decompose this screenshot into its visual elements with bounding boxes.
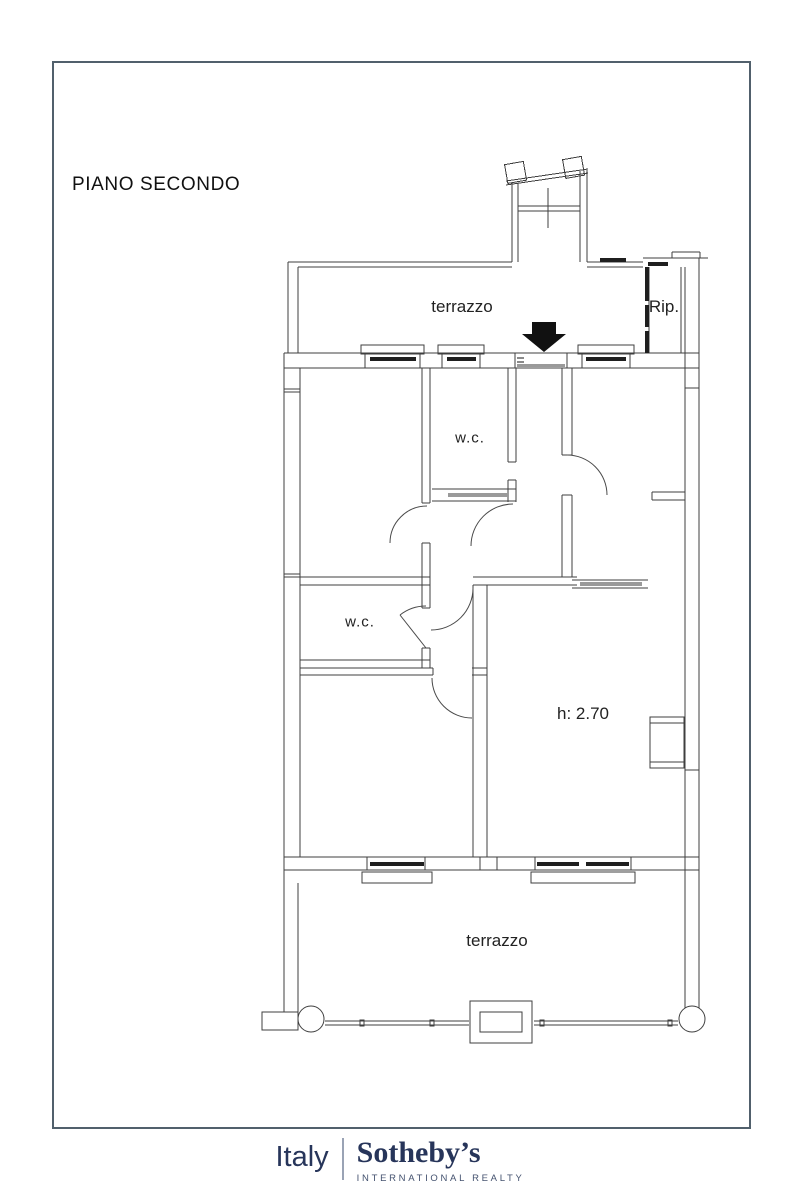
balcony-columns	[298, 1006, 705, 1032]
entrance-arrow-icon	[522, 322, 566, 352]
stairwell-protrusion	[505, 156, 588, 262]
room-label-wc-mid: w.c.	[345, 614, 375, 631]
right-exterior-wall	[652, 258, 699, 883]
left-exterior-wall	[284, 353, 300, 883]
bottom-terrace-walls	[262, 883, 699, 1043]
brand-divider	[342, 1138, 344, 1180]
window-bars	[370, 258, 668, 866]
room-label-terrace-top: terrazzo	[431, 297, 492, 317]
floor-title: PIANO SECONDO	[72, 174, 240, 196]
room-label-storage: Rip.	[649, 297, 679, 317]
interior-partitions	[300, 368, 684, 857]
ceiling-height-label: h: 2.70	[557, 704, 609, 724]
brand-subtitle-label: INTERNATIONAL REALTY	[357, 1173, 525, 1184]
brand-footer: Italy Sotheby’s INTERNATIONAL REALTY	[0, 1138, 800, 1184]
top-main-wall	[284, 345, 699, 368]
bottom-main-wall	[284, 857, 699, 883]
floorplan-walls	[262, 156, 708, 1043]
brand-name-block: Sotheby’s INTERNATIONAL REALTY	[357, 1138, 525, 1184]
room-label-terrace-bottom: terrazzo	[466, 931, 527, 951]
brand-name-label: Sotheby’s	[357, 1138, 481, 1168]
brand-region-label: Italy	[275, 1138, 328, 1172]
room-label-wc-top: w.c.	[455, 430, 485, 447]
